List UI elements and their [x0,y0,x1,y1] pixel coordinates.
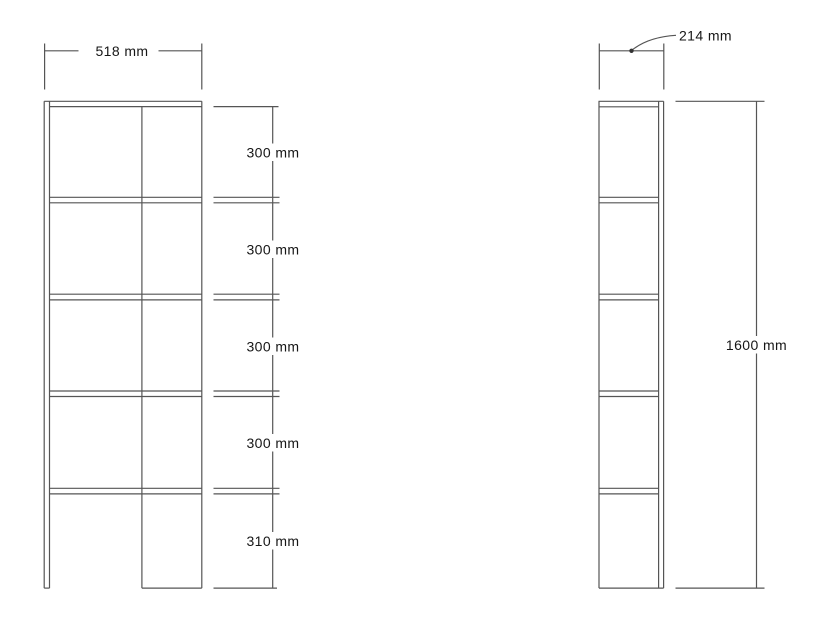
svg-text:300 mm: 300 mm [247,339,300,355]
svg-text:1600 mm: 1600 mm [726,337,787,353]
svg-text:300 mm: 300 mm [247,435,300,451]
svg-text:310 mm: 310 mm [247,533,300,549]
svg-text:300 mm: 300 mm [247,242,300,258]
svg-text:518 mm: 518 mm [96,43,149,59]
svg-text:214 mm: 214 mm [679,28,732,44]
svg-text:300 mm: 300 mm [247,145,300,161]
